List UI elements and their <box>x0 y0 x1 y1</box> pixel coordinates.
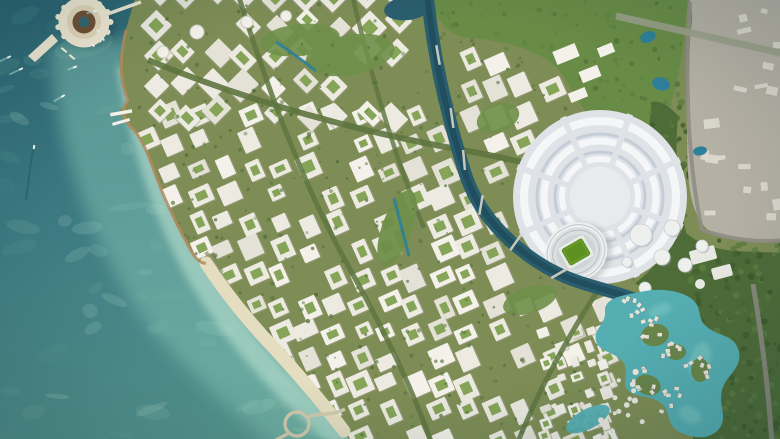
masterplan-svg <box>0 0 780 439</box>
aerial-masterplan-image <box>0 0 780 439</box>
vignette <box>0 0 780 439</box>
